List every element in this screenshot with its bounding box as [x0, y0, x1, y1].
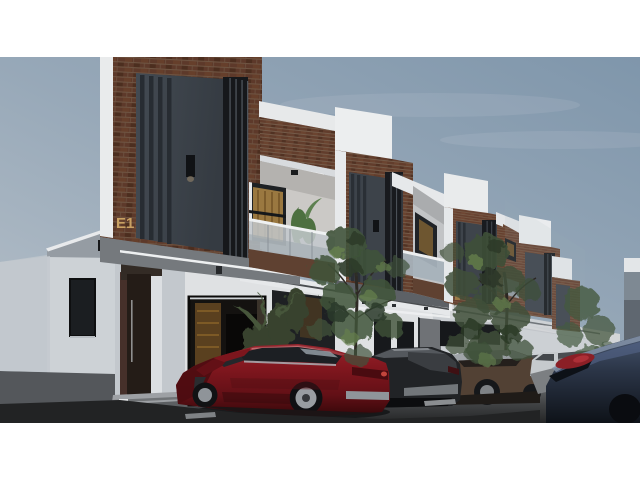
svg-text:E1: E1: [116, 215, 134, 232]
